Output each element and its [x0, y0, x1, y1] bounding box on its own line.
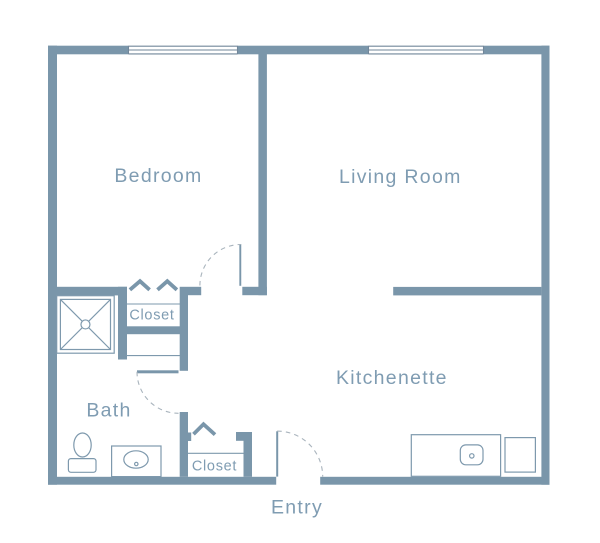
svg-text:Bedroom: Bedroom — [114, 165, 202, 187]
svg-text:Closet: Closet — [129, 308, 174, 324]
svg-text:Entry: Entry — [271, 497, 323, 519]
svg-text:Bath: Bath — [86, 400, 131, 422]
svg-text:Living Room: Living Room — [339, 166, 462, 188]
svg-text:Kitchenette: Kitchenette — [336, 367, 448, 389]
svg-text:Closet: Closet — [192, 459, 237, 475]
